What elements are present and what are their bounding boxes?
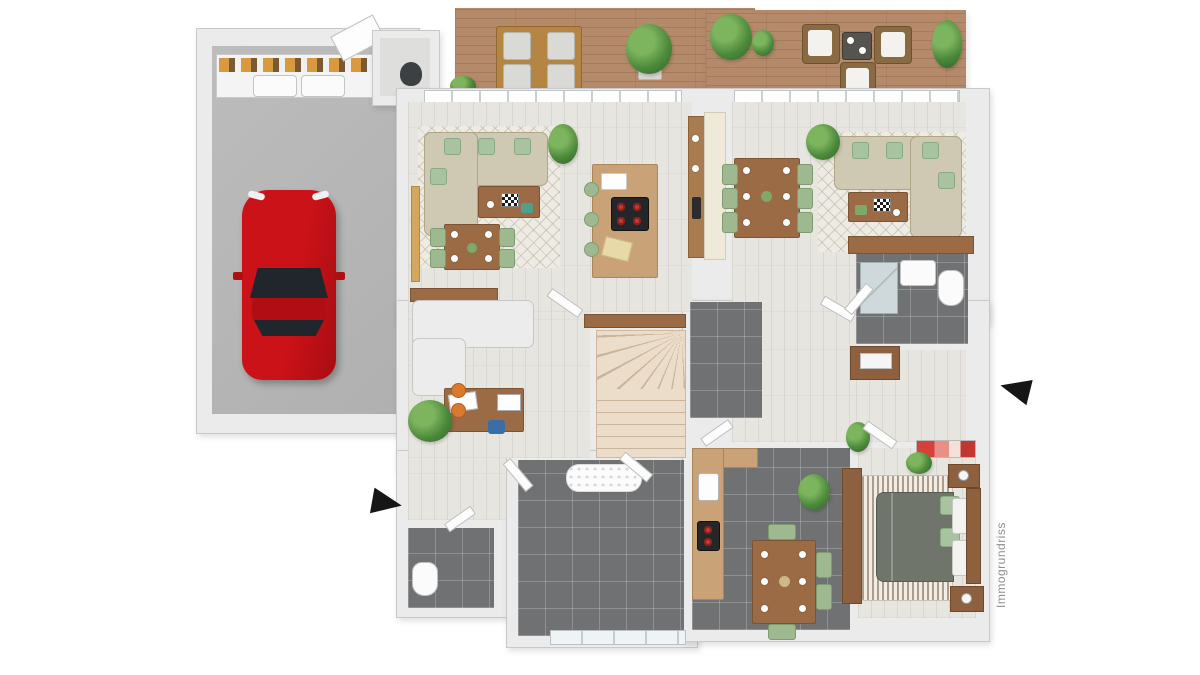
- terrace-plant: [626, 24, 672, 74]
- nightstand: [950, 586, 984, 612]
- checkerboard: [501, 193, 519, 207]
- watermark-label: Immogrundriss: [994, 536, 1008, 608]
- entry-glass-door: [550, 630, 686, 645]
- green-pillow: [855, 205, 867, 215]
- terrace-plant-small: [752, 30, 774, 56]
- coffee-table: [848, 192, 908, 222]
- cooktop: [611, 197, 649, 231]
- sofa-pillow: [938, 172, 955, 189]
- car-rear-window: [254, 320, 324, 336]
- dining-chair: [430, 249, 446, 268]
- coffee-machine: [692, 197, 701, 219]
- dining-table-right-unit: [734, 158, 800, 238]
- right-unit-tiled-hall-floor: [690, 302, 762, 418]
- dining-chair: [499, 249, 515, 268]
- workbench: [253, 75, 297, 97]
- terrace-plant: [932, 20, 962, 68]
- table-centerpiece: [761, 191, 772, 202]
- duvet-fold: [891, 493, 893, 581]
- left-unit-corridor-floor: [408, 458, 506, 520]
- indoor-plant: [548, 124, 578, 164]
- red-car: [242, 190, 336, 380]
- entrance-arrow-left: [370, 488, 404, 519]
- bar-stool: [584, 212, 599, 227]
- bathroom-vanity: [900, 260, 936, 286]
- dining-chair: [499, 228, 515, 247]
- dining-chair: [430, 228, 446, 247]
- dresser-top-item: [860, 353, 892, 369]
- toilet: [412, 562, 438, 596]
- coffee-table: [478, 186, 540, 218]
- table-centerpiece: [467, 243, 477, 253]
- cooktop: [697, 521, 720, 551]
- dining-chair: [722, 188, 738, 209]
- dining-chair: [797, 212, 813, 233]
- car-mirror: [335, 272, 345, 280]
- kitchen-sink: [698, 473, 719, 501]
- bedroom-plant: [906, 452, 932, 474]
- toilet-dark: [400, 62, 422, 86]
- outdoor-chair-cushion: [503, 32, 531, 60]
- checkerboard: [873, 198, 891, 212]
- car-mirror: [233, 272, 243, 280]
- food-plate: [601, 173, 627, 190]
- car-roof: [252, 298, 326, 320]
- sofa-pillow: [444, 138, 461, 155]
- dining-chair: [722, 164, 738, 185]
- sofa-pillow: [922, 142, 939, 159]
- outdoor-armchair: [802, 24, 840, 64]
- sofa-pillow: [886, 142, 903, 159]
- outdoor-armchair: [874, 26, 912, 64]
- dining-chair: [768, 524, 796, 540]
- kitchen-counter-left: [692, 448, 724, 600]
- sofa-pillow: [852, 142, 869, 159]
- dining-chair: [722, 212, 738, 233]
- bar-stool: [584, 242, 599, 257]
- sofa-pillow: [430, 168, 447, 185]
- workbench: [301, 75, 345, 97]
- sideboard: [584, 314, 686, 328]
- bar-stool: [584, 182, 599, 197]
- kitchen-plant: [798, 474, 830, 510]
- dining-table-kitchen-room: [752, 540, 816, 624]
- dining-chair: [768, 624, 796, 640]
- car-headlight: [247, 190, 265, 201]
- tall-kitchen-cabinet: [704, 112, 726, 260]
- outdoor-chair-cushion: [547, 32, 575, 60]
- car-headlight: [311, 190, 329, 201]
- armchair-cushion: [808, 30, 832, 56]
- toilet: [938, 270, 964, 306]
- sofa-pillow: [478, 138, 495, 155]
- dining-chair: [797, 188, 813, 209]
- dining-chair: [816, 584, 832, 610]
- terrace-plant: [710, 14, 752, 60]
- dining-table-left-unit: [444, 224, 500, 270]
- indoor-plant: [806, 124, 840, 160]
- monitor: [497, 394, 521, 411]
- outdoor-coffee-table: [842, 32, 872, 60]
- orange-stool: [452, 384, 465, 397]
- gold-radiator: [411, 186, 420, 282]
- bathroom-wood-wall: [848, 236, 974, 254]
- dining-chair: [816, 552, 832, 578]
- sofa-pillow: [514, 138, 531, 155]
- hall-dresser: [850, 346, 900, 380]
- staircase: [596, 330, 686, 458]
- office-plant: [408, 400, 452, 442]
- orange-stool: [452, 404, 465, 417]
- teal-pillow: [521, 203, 533, 213]
- table-bowl: [779, 576, 790, 587]
- blue-chair: [488, 420, 505, 434]
- wardrobe: [842, 468, 862, 604]
- cutting-board: [601, 236, 633, 262]
- dining-chair: [797, 164, 813, 185]
- kitchen-wall-counter: [688, 116, 705, 258]
- bed-headboard: [966, 488, 981, 584]
- nightstand: [948, 464, 980, 488]
- car-windshield: [250, 268, 328, 298]
- entrance-arrow-right: [997, 373, 1032, 405]
- armchair-cushion: [881, 32, 905, 57]
- floorplan-3d-render: Immogrundriss: [0, 0, 1200, 675]
- kitchen-island: [592, 164, 658, 278]
